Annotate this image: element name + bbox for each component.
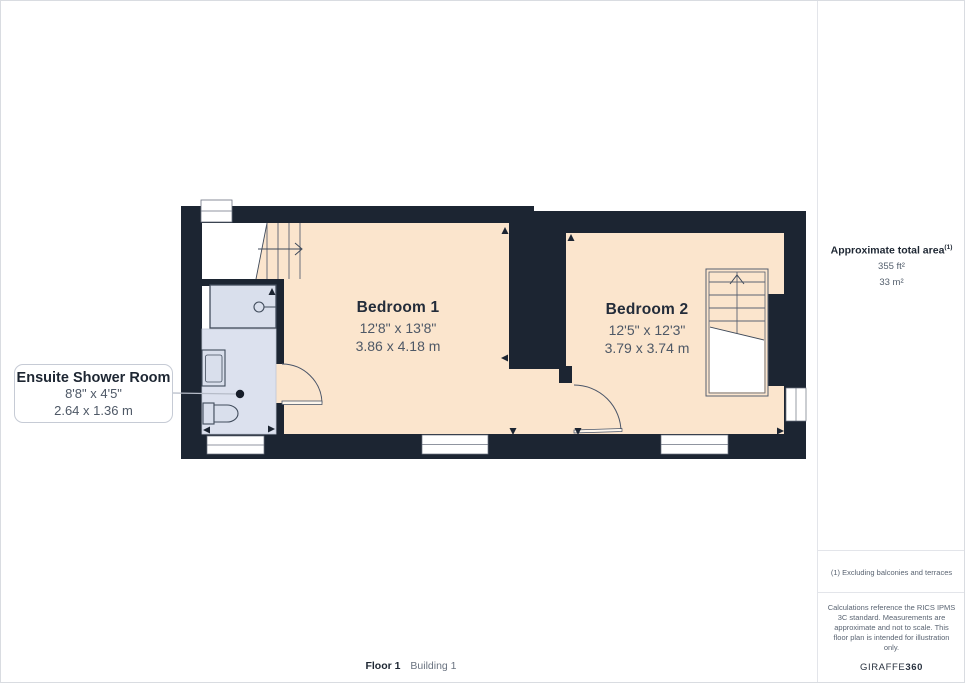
window	[207, 436, 264, 454]
floorplan-page: Bedroom 1 12'8" x 13'8" 3.86 x 4.18 m Be…	[0, 0, 965, 683]
wall-top-left	[181, 206, 534, 223]
window	[422, 435, 488, 454]
footnote-section: (1) Excluding balconies and terraces	[818, 550, 965, 593]
wall-left	[181, 206, 202, 459]
info-sidebar: Approximate total area(1) 355 ft² 33 m² …	[817, 1, 965, 682]
brand-name: GIRAFFE	[860, 662, 905, 673]
sink	[202, 350, 225, 386]
window-right	[786, 388, 806, 421]
window	[661, 435, 728, 454]
floor-label: Floor 1	[365, 660, 400, 672]
total-area-title: Approximate total area(1)	[818, 244, 965, 257]
room-name: Ensuite Shower Room	[15, 370, 172, 386]
footnote-text: (1) Excluding balconies and terraces	[831, 568, 952, 577]
disclaimer-text: Calculations reference the RICS IPMS 3C …	[827, 603, 956, 653]
total-area-label: Approximate total area	[831, 245, 945, 257]
building-label: Building 1	[410, 660, 456, 672]
disclaimer-section: Calculations reference the RICS IPMS 3C …	[818, 592, 965, 673]
wall-door-stub	[559, 366, 572, 383]
staircase-bedroom2	[706, 269, 768, 396]
total-area-ft: 355 ft²	[818, 261, 965, 272]
giraffe360-logo: GIRAFFE360	[827, 662, 956, 673]
total-area-m: 33 m²	[818, 277, 965, 288]
wall-top-right	[534, 211, 806, 233]
footnote-marker: (1)	[944, 244, 952, 251]
window-top-left	[201, 200, 232, 222]
wall-right-of-stairs	[768, 294, 806, 386]
room-dim-imperial: 8'8" x 4'5"	[15, 386, 172, 403]
room-label-dot	[236, 390, 244, 398]
wall-ensuite-upper	[276, 286, 284, 364]
shower-tray	[210, 285, 276, 328]
ensuite-callout: Ensuite Shower Room 8'8" x 4'5" 2.64 x 1…	[14, 364, 173, 423]
brand-suffix: 360	[905, 662, 923, 673]
total-area-block: Approximate total area(1) 355 ft² 33 m²	[818, 244, 965, 288]
wall-between-bedrooms	[509, 223, 566, 369]
toilet	[203, 403, 238, 424]
wall-ensuite-lower	[276, 403, 284, 434]
room-dim-metric: 2.64 x 1.36 m	[15, 403, 172, 420]
floor-indicator: Floor 1 Building 1	[331, 660, 491, 672]
door-leaf	[282, 401, 322, 405]
